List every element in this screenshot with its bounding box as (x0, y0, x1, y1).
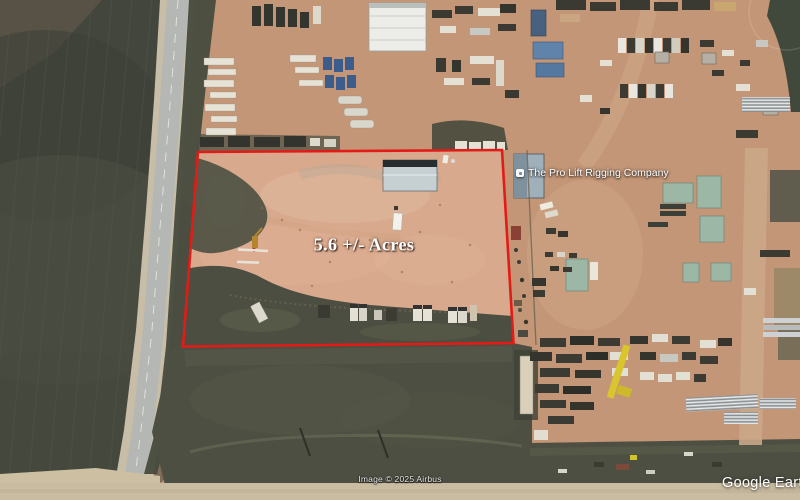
pipe-rack (742, 97, 790, 112)
place-icon (516, 169, 524, 177)
google-earth-watermark: Google Earth (722, 475, 800, 491)
imagery-attribution: Image © 2025 Airbus (358, 474, 441, 484)
google-earth-satellite-view: 5.6 +/- Acres The Pro Lift Rigging Compa… (0, 0, 800, 500)
white-truck (590, 262, 598, 280)
white-truck-in-lot (392, 213, 402, 231)
south-grass-field (152, 343, 538, 485)
place-label[interactable]: The Pro Lift Rigging Company (516, 167, 669, 179)
white-trailer-row-above-lot (455, 141, 505, 150)
place-label-text: The Pro Lift Rigging Company (528, 167, 669, 179)
white-warehouse-building (369, 3, 426, 51)
acreage-label: 5.6 +/- Acres (314, 235, 415, 256)
